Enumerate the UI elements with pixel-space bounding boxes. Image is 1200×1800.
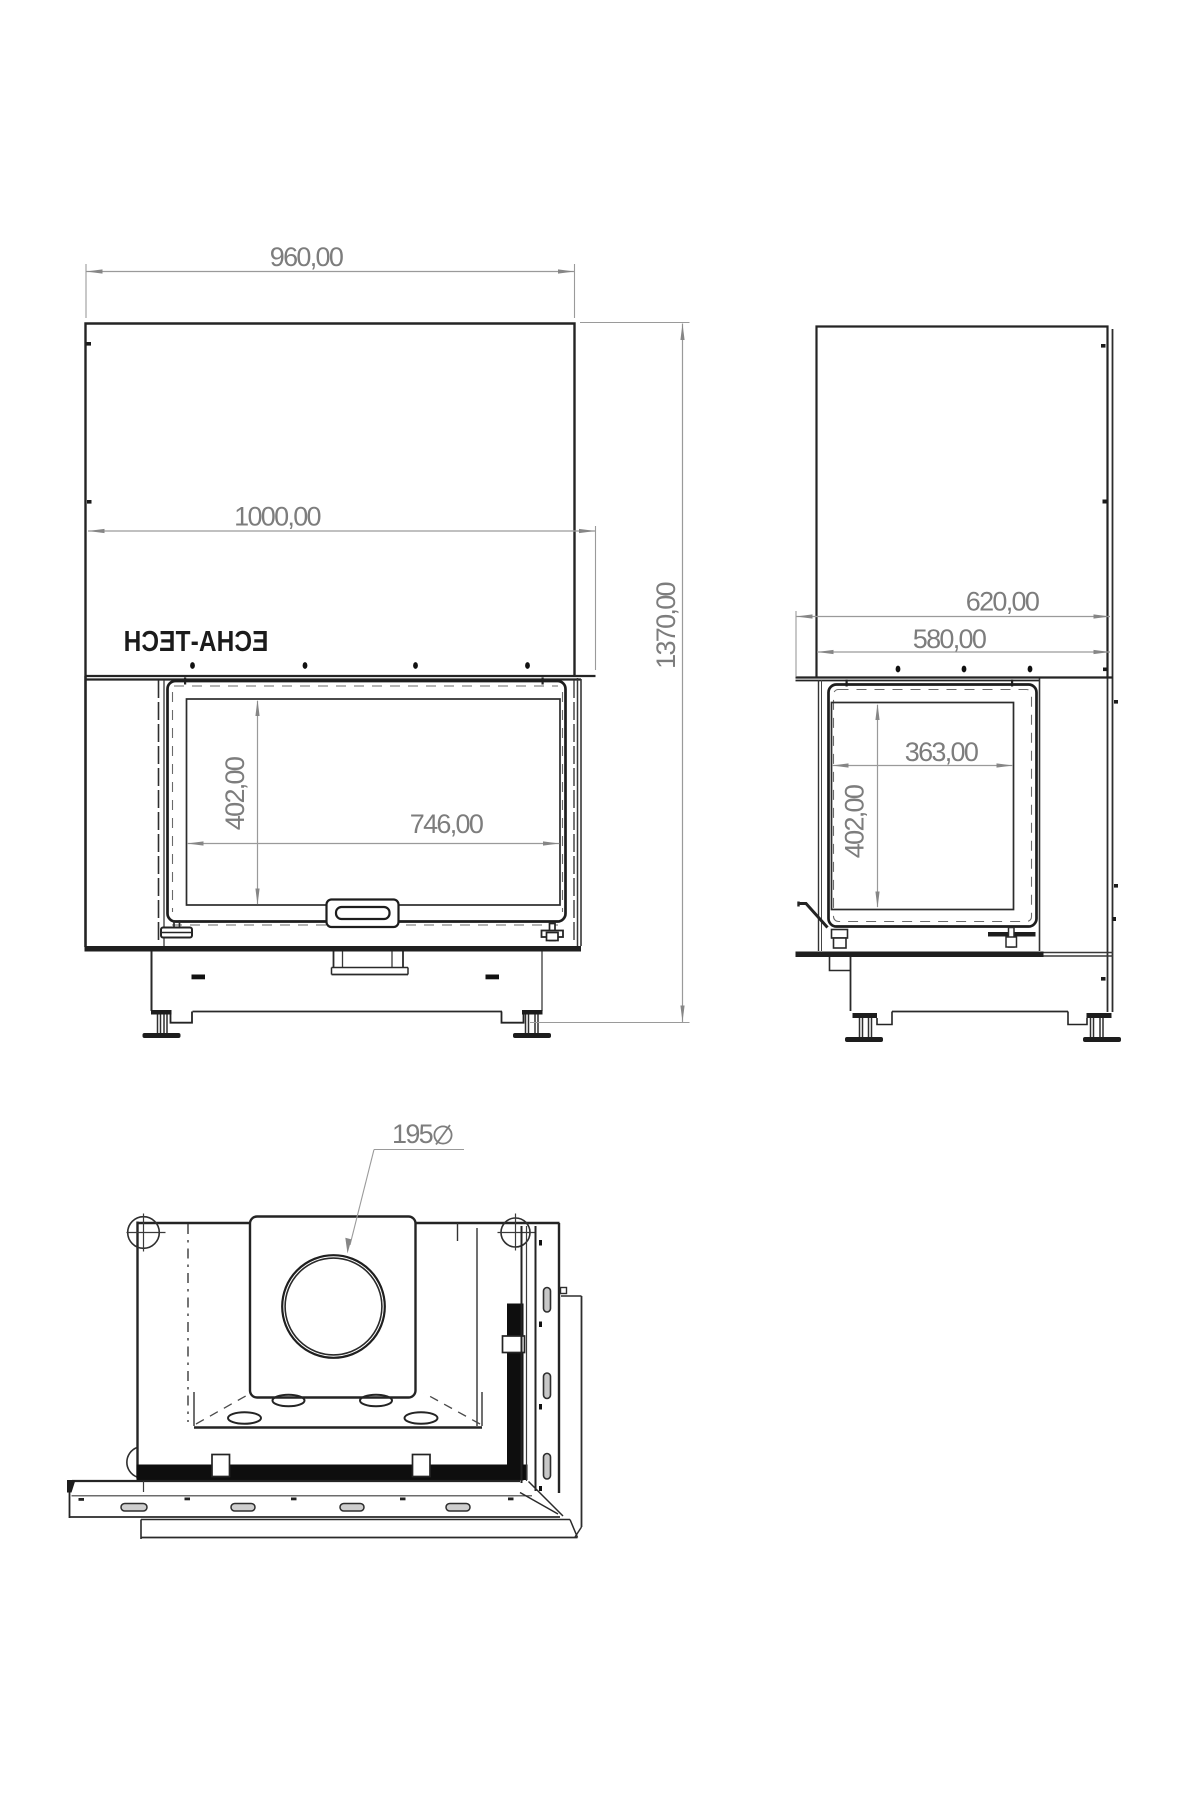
svg-text:402,00: 402,00: [220, 757, 250, 830]
svg-text:402,00: 402,00: [840, 785, 870, 858]
svg-text:960,00: 960,00: [270, 242, 343, 272]
svg-text:363,00: 363,00: [905, 737, 978, 767]
svg-text:195: 195: [392, 1119, 433, 1149]
svg-text:ECHA-TECH: ECHA-TECH: [124, 625, 269, 657]
svg-text:620,00: 620,00: [966, 587, 1039, 617]
svg-text:580,00: 580,00: [913, 624, 986, 654]
svg-text:1370,00: 1370,00: [651, 582, 681, 668]
svg-text:1000,00: 1000,00: [234, 502, 320, 532]
svg-text:746,00: 746,00: [410, 809, 483, 839]
